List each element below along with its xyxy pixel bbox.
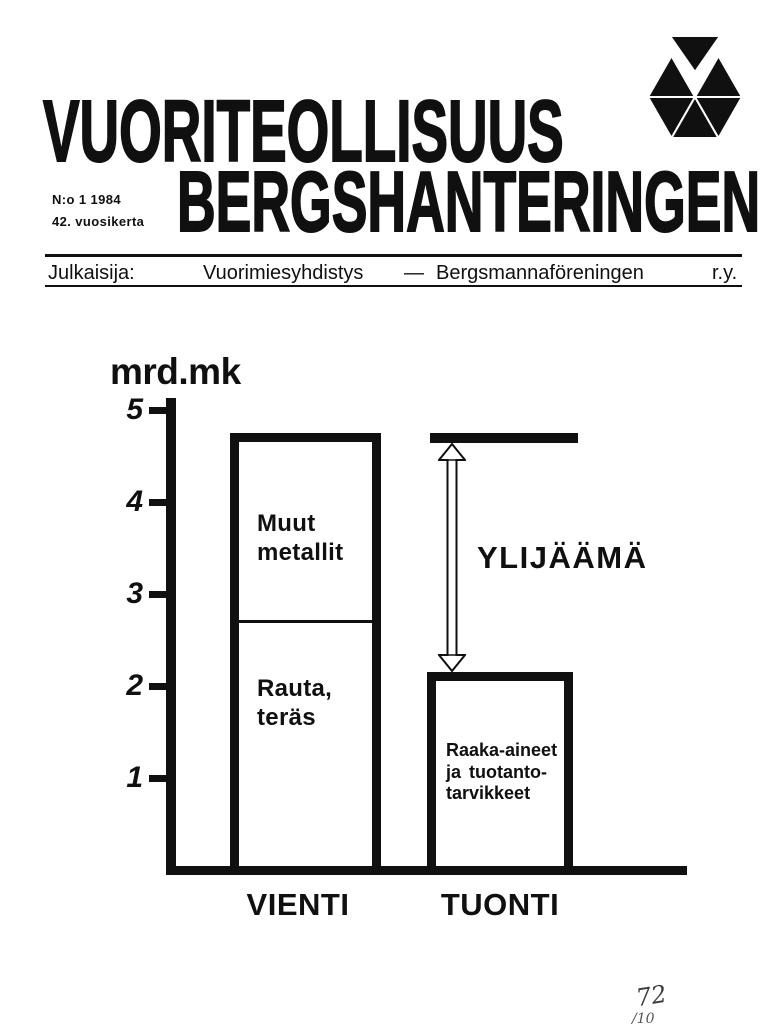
issue-number: N:o 1 1984 bbox=[52, 189, 144, 211]
segment-label-line: teräs bbox=[257, 703, 332, 732]
publisher-rule-top bbox=[45, 254, 742, 257]
issue-info: N:o 1 1984 42. vuosikerta bbox=[52, 189, 144, 232]
y-tick-mark bbox=[149, 499, 168, 506]
publisher-name-fi: Vuorimiesyhdistys bbox=[203, 262, 363, 285]
y-tick-mark bbox=[149, 591, 168, 598]
segment-label-line: Muut bbox=[257, 509, 343, 538]
tuonti-segment-label: Raaka-aineet ja tuotanto- tarvikkeet bbox=[446, 740, 557, 805]
mining-association-logo-icon bbox=[648, 36, 742, 142]
segment-label-line: tarvikkeet bbox=[446, 783, 557, 805]
vienti-bar bbox=[230, 433, 381, 875]
y-tick-label: 4 bbox=[88, 481, 143, 523]
publisher-separator: — bbox=[404, 262, 424, 285]
journal-title-swedish: BERGSHANTERINGEN bbox=[177, 160, 760, 245]
vienti-upper-segment-label: Muut metallit bbox=[257, 509, 343, 567]
handwritten-number: 72 bbox=[634, 980, 669, 1012]
publisher-label: Julkaisija: bbox=[48, 262, 135, 285]
chart-unit-label: mrd.mk bbox=[110, 351, 241, 393]
handwritten-number-cut: /10 bbox=[632, 1011, 655, 1024]
y-tick-label: 2 bbox=[88, 665, 143, 707]
volume-number: 42. vuosikerta bbox=[52, 211, 144, 233]
publisher-name-sv: Bergsmannaföreningen bbox=[436, 262, 644, 285]
vienti-segment-divider bbox=[239, 620, 372, 623]
y-tick-mark bbox=[149, 683, 168, 690]
vienti-lower-segment-label: Rauta, teräs bbox=[257, 674, 332, 732]
y-axis bbox=[166, 398, 176, 875]
y-tick-label: 3 bbox=[88, 573, 143, 615]
category-label-tuonti: TUONTI bbox=[424, 887, 576, 923]
publisher-suffix: r.y. bbox=[712, 262, 737, 285]
publisher-rule-bottom bbox=[45, 285, 742, 287]
y-tick-label: 5 bbox=[88, 389, 143, 431]
surplus-double-arrow-icon bbox=[438, 443, 466, 672]
y-tick-label: 1 bbox=[88, 757, 143, 799]
magazine-cover-page: N:o 1 1984 42. vuosikerta VUORITEOLLISUU… bbox=[0, 0, 770, 1024]
segment-label-line: metallit bbox=[257, 538, 343, 567]
segment-label-line: ja tuotanto- bbox=[446, 762, 557, 784]
y-tick-mark bbox=[149, 775, 168, 782]
segment-label-line: Rauta, bbox=[257, 674, 332, 703]
category-label-vienti: VIENTI bbox=[222, 887, 374, 923]
y-tick-mark bbox=[149, 407, 168, 414]
surplus-annotation: YLIJÄÄMÄ bbox=[477, 540, 647, 576]
import-total-reference-line bbox=[430, 433, 578, 443]
segment-label-line: Raaka-aineet bbox=[446, 740, 557, 762]
